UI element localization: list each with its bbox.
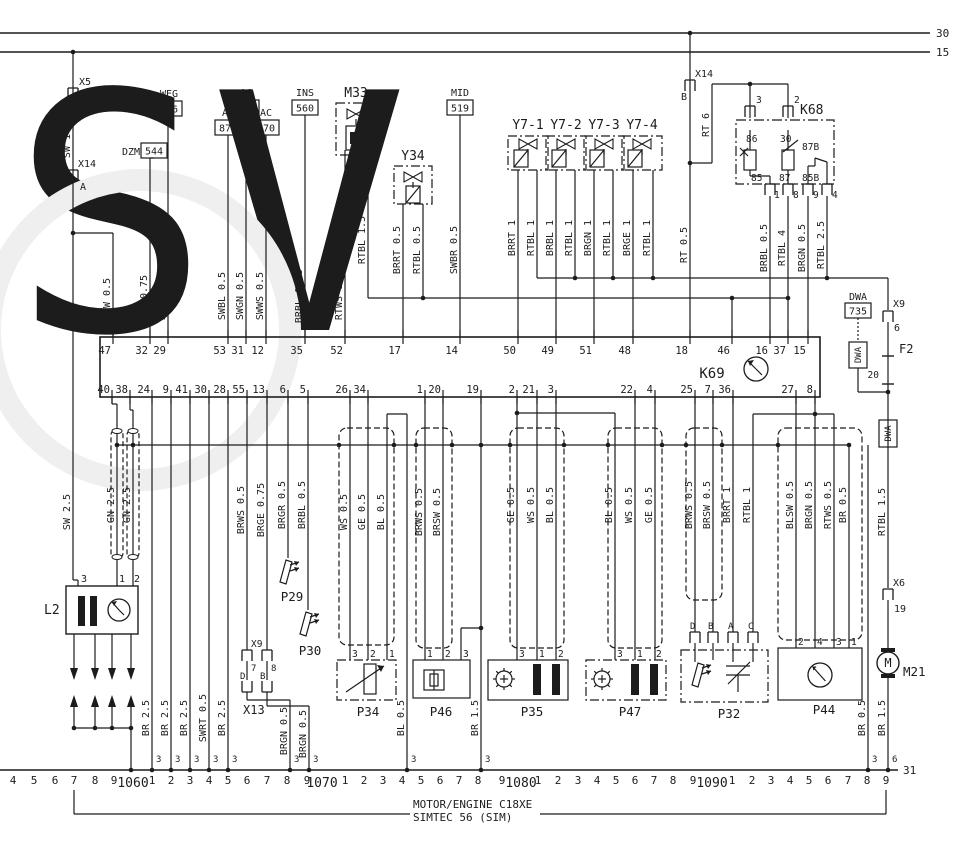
ecu-pin-19: 19 [466,384,479,396]
connector-label-X9: X9 [251,639,263,650]
spark-arrow-up [127,695,135,707]
connector-label-X5: X5 [79,77,91,88]
connector-label-X14: X14 [695,69,713,80]
ecu-pin-1: 1 [417,384,423,396]
label: A [80,182,86,193]
label: 1 [119,574,125,585]
label: 4 [817,637,823,648]
connector-icon [748,632,758,643]
ecu-pin-35: 35 [290,345,303,357]
ecu-pin-55: 55 [232,384,245,396]
scale-number-1090: 1090 [696,776,727,791]
junction-dot [748,82,753,87]
part-label-M33: M33 [344,86,367,101]
part-label-Y34: Y34 [401,149,425,164]
scale-number-4: 4 [787,774,794,787]
pickup-bar [650,664,658,695]
wire-label-BR-1-5: BR 1.5 [470,700,481,736]
junction-dot [226,768,231,773]
junction-dot [688,31,693,36]
part-label-K68: K68 [800,103,823,118]
junction-dot [71,50,76,55]
label: 3 [463,649,469,660]
wire-label-BRGE-0-75: BRGE 0.75 [256,483,267,537]
wire-label-GN-0-75: GN 0.75 [139,275,150,317]
part-label-AC: AC [222,108,234,119]
label: D [690,622,695,632]
ecu-pin-27: 27 [781,384,794,396]
ecu-pin-7: 7 [705,384,711,396]
scale-number-2: 2 [749,774,756,787]
ecu-pin-12: 12 [251,345,264,357]
junction-dot [188,768,193,773]
junction-dot [479,626,484,631]
part-label-P34: P34 [357,704,380,719]
ecu-pin-9: 9 [163,384,169,396]
scale-number-6: 6 [632,774,639,787]
wire-label-BR-2-5: BR 2.5 [141,700,152,736]
part-code-872: 872 [237,104,255,115]
relay-coil [782,150,794,170]
wire-label-WS-0-5: WS 0.5 [526,487,537,523]
ecu-pin-13: 13 [252,384,265,396]
scale-number-7: 7 [71,774,78,787]
wire-label-BRRT-1: BRRT 1 [722,487,733,523]
pickup-bar [552,664,560,695]
wire-label-BR-1-5: BR 1.5 [877,700,888,736]
wire-label-RTWS-1-5: RTWS 1.5 [334,272,345,320]
wire-label-GN-2-5: GN 2.5 [122,487,133,523]
part-code-560: 560 [296,104,314,115]
wire-label-BRSW-0-5: BRSW 0.5 [702,481,713,529]
scale-number-7: 7 [845,774,852,787]
wire-label-BL-0-5: BL 0.5 [396,700,407,736]
wire-label-BRRT-1: BRRT 1 [507,220,518,256]
scale-number-3: 3 [575,774,582,787]
junction-dot [131,443,136,448]
wire-label-RTWS-0-5: RTWS 0.5 [823,481,834,529]
label: C [748,622,753,632]
scale-number-8: 8 [475,774,482,787]
junction-dot [479,768,484,773]
label: 86 [746,134,758,145]
label: 85B [802,173,819,184]
wire [815,158,827,162]
junction-dot [71,231,76,236]
wire [594,685,596,687]
wire-label-SWRT-0-5: SWRT 0.5 [198,694,209,742]
label: 1 [389,649,395,660]
label: 3 [352,649,358,660]
wire-label-BLSW-0-5: BLSW 0.5 [785,481,796,529]
wire-label-RTBL-1: RTBL 1 [564,220,575,256]
connector-icon [242,650,252,661]
part-label-P46: P46 [430,704,453,719]
part-label-P29: P29 [281,589,304,604]
spark-arrow-up [108,695,116,707]
wire-label-BRWS-0-5: BRWS 0.5 [414,488,425,536]
junction-dot [169,768,174,773]
ecu-pin-16: 16 [755,345,768,357]
label: DWA [884,425,894,442]
label: 8 [793,190,799,201]
sensor-icon [300,612,312,636]
connector-icon [822,184,832,195]
scale-number-2: 2 [555,774,562,787]
label: 735 [849,307,867,318]
scale-number-9: 9 [499,774,506,787]
wire-label-RT-6: RT 6 [701,113,712,137]
junction-dot [886,768,891,773]
scale-number-4: 4 [10,774,17,787]
scale-number-5: 5 [418,774,425,787]
wire-label-BRSW-0-5: BRSW 0.5 [432,488,443,536]
connector-icon [262,681,272,692]
part-label-P32: P32 [718,706,741,721]
ecu-pin-6: 6 [280,384,286,396]
connector-label-X13: X13 [243,703,265,717]
part-label-DZM: DZM [122,147,140,158]
wire-label-WS-0-5: WS 0.5 [624,487,635,523]
junction-dot [886,390,891,395]
ecu-pin-26: 26 [335,384,348,396]
rail-connection-6: 6 [892,755,897,765]
scale-number-6: 6 [244,774,251,787]
part-label-Y7-1: Y7-1 [512,118,543,133]
part-code-870: 870 [257,124,275,135]
rail-connection-3: 3 [175,755,180,765]
wire [628,150,642,167]
rail-connection-3: 3 [232,755,237,765]
watermark: SV [11,24,408,408]
ecu-pin-14: 14 [445,345,458,357]
scale-number-8: 8 [92,774,99,787]
scale-number-1: 1 [729,774,736,787]
ecu-pin-37: 37 [773,345,786,357]
scale-number-2: 2 [361,774,368,787]
box [881,648,895,652]
rail-connection-3: 3 [313,755,318,765]
connector-icon [803,184,813,195]
connector-icon [883,311,893,322]
wire-label-BR-0-5: BR 0.5 [838,487,849,523]
spark-arrow-down [127,668,135,680]
junction-dot [515,411,520,416]
ecu-pin-4: 4 [647,384,653,396]
scale-number-6: 6 [52,774,59,787]
wire [510,685,512,687]
connector-icon [708,632,718,643]
connector-icon [690,632,700,643]
connector-label-X14: X14 [78,159,96,170]
ecu-pin-41: 41 [175,384,188,396]
sensor-icon [280,560,292,584]
wire-label-RT-0-5: RT 0.5 [679,227,690,263]
rail-connection-3: 3 [213,755,218,765]
wire [552,150,566,167]
scale-number-1060: 1060 [117,776,148,791]
sensor-icon [692,663,704,687]
scale-number-8: 8 [284,774,291,787]
part-label-P30: P30 [299,643,322,658]
label: 3 [756,95,762,106]
junction-dot [129,768,134,773]
wire-label-RTBL-1: RTBL 1 [742,487,753,523]
bus-label-15: 15 [936,46,949,59]
wire [510,671,512,673]
part-label-WEG: WEG [160,89,178,100]
label: 1 [851,637,857,648]
label: 1 [637,649,643,660]
connector-label-X9: X9 [893,299,905,310]
coil-bar [78,596,85,626]
motor-symbol: M [884,656,891,670]
rail-connection-3: 3 [411,755,416,765]
connector-icon [262,650,272,661]
ecu-pin-28: 28 [213,384,226,396]
wire-label-BL-0-5: BL 0.5 [604,487,615,523]
wire [496,671,498,673]
scale-number-5: 5 [806,774,813,787]
junction-dot [847,443,852,448]
wire-label-BL-0-5: BL 0.5 [376,494,387,530]
label: 2 [445,649,451,660]
label: 30 [780,134,792,145]
wire-label-BL-0-5: BL 0.5 [545,487,556,523]
part-label-MID: MID [451,88,469,99]
wire-label-BRGN-1: BRGN 1 [583,220,594,256]
label: 1 [539,649,545,660]
label: 6 [894,323,900,334]
scale-number-3: 3 [187,774,194,787]
junction-dot [288,768,293,773]
part-label-L2: L2 [44,603,60,618]
connector-icon [883,589,893,600]
scale-number-1: 1 [342,774,349,787]
part-label-AC: AC [240,88,252,99]
wire-label-RTBL-4: RTBL 4 [777,230,788,266]
junction-dot [421,296,426,301]
ecu-pin-18: 18 [675,345,688,357]
label: 2 [558,649,564,660]
wire-label-SW-1-5: SW 1.5 [62,122,73,158]
scale-number-5: 5 [225,774,232,787]
part-label-Y7-2: Y7-2 [550,118,581,133]
wire-label-RTBL-1: RTBL 1 [602,220,613,256]
wire [608,685,610,687]
part-code-556: 556 [160,105,178,116]
pump-icon [350,132,362,144]
ecu-pin-51: 51 [579,345,592,357]
scale-number-7: 7 [264,774,271,787]
ecu-pin-52: 52 [330,345,343,357]
part-box-P46 [413,660,470,698]
junction-dot [730,296,735,301]
rail-connection-3: 3 [872,755,877,765]
wire [594,671,596,673]
label: 4 [832,190,838,201]
scale-number-4: 4 [206,774,213,787]
wire [608,671,610,673]
valve-icon [557,139,575,149]
wire-label-SWBR-0-5: SWBR 0.5 [449,226,460,274]
wiring-diagram: SV301531K6947322953311235521714504951481… [0,0,967,842]
junction-dot [72,726,77,731]
valve-icon [519,139,537,149]
coil-bar [90,596,97,626]
label: 3 [519,649,525,660]
scale-number-3: 3 [768,774,775,787]
part-code-544: 544 [145,147,163,158]
label: DWA [854,346,864,363]
wire-label-SW-2-5: SW 2.5 [62,494,73,530]
pickup-bar [631,664,639,695]
scale-number-4: 4 [399,774,406,787]
ecu-pin-30: 30 [194,384,207,396]
wire [119,610,124,615]
ecu-pin-53: 53 [213,345,226,357]
spark-arrow-up [91,695,99,707]
tube-end [112,429,122,434]
junction-dot [207,768,212,773]
bus-label-30: 30 [936,27,949,40]
scale-number-2: 2 [168,774,175,787]
label: 2 [798,637,804,648]
scale-number-8: 8 [670,774,677,787]
wire [820,675,825,681]
ecu-pin-36: 36 [718,384,731,396]
wire-label-WS-0-5: WS 0.5 [339,494,350,530]
junction-dot [129,726,134,731]
ecu-pin-50: 50 [503,345,516,357]
part-label-DWA: DWA [849,292,867,303]
wire-label-GE-0-5: GE 0.5 [644,487,655,523]
part-code-519: 519 [451,104,469,115]
wire-label-BRBL-0-5: BRBL 0.5 [759,224,770,272]
scale-number-3: 3 [380,774,387,787]
rail-connection-3: 3 [294,755,299,765]
wire-label-GE-0-5: GE 0.5 [506,487,517,523]
wire [514,150,528,167]
arrow [377,665,384,672]
spark-arrow-down [70,668,78,680]
wire-label-BR-2-5: BR 2.5 [160,700,171,736]
label: 87B [802,142,819,153]
part-label-Y7-4: Y7-4 [626,118,657,133]
spark-arrow-down [108,668,116,680]
ecu-pin-22: 22 [620,384,633,396]
part-label-P35: P35 [521,704,544,719]
wire-label-RTBL-1: RTBL 1 [642,220,653,256]
wire-label-BRWS-0-5: BRWS 0.5 [684,481,695,529]
scale-number-8: 8 [864,774,871,787]
part-label-P47: P47 [619,704,642,719]
ecu-pin-47: 47 [98,345,111,357]
scale-number-1: 1 [535,774,542,787]
label: 9 [80,100,86,111]
wire-label-BRGN-0-5: BRGN 0.5 [298,710,309,758]
scale-number-9: 9 [111,774,118,787]
scale-number-5: 5 [613,774,620,787]
pickup-bar [533,664,541,695]
ecu-pin-29: 29 [153,345,166,357]
part-label-Y7-3: Y7-3 [588,118,619,133]
ecu-pin-34: 34 [353,384,366,396]
wire-label-SWBL-0-5: SWBL 0.5 [217,272,228,320]
junction-dot [479,443,484,448]
label: 2 [134,574,140,585]
wire-label-BR-2-5: BR 2.5 [179,700,190,736]
connector-icon [728,632,738,643]
ecu-pin-31: 31 [231,345,244,357]
caption: MOTOR/ENGINE C18XE SIMTEC 56 (SIM) [413,798,532,824]
label: 85 [751,173,762,184]
junction-dot [405,768,410,773]
ecu-pin-49: 49 [541,345,554,357]
ecu-pin-24: 24 [137,384,150,396]
wire-label-BR-2-5: BR 2.5 [217,700,228,736]
wire [590,150,604,167]
part-box-L2 [66,586,138,634]
wire-label-BRBL-1: BRBL 1 [545,220,556,256]
junction-dot [115,443,120,448]
junction-dot [813,412,818,417]
junction-dot [825,276,830,281]
ecu-pin-20: 20 [428,384,441,396]
label: 87 [779,173,790,184]
label: B [708,622,713,632]
label: B [260,672,265,682]
connector-icon [242,681,252,692]
part-label-INS: INS [296,88,314,99]
part-box-P44 [778,648,862,700]
junction-dot [786,296,791,301]
junction-dot [307,768,312,773]
wire-label-SWWS-0-5: SWWS 0.5 [255,272,266,320]
shield [339,428,394,645]
scale-number-1: 1 [149,774,156,787]
label: 8 [271,664,276,674]
wire-label-BRGN-0-5: BRGN 0.5 [279,707,290,755]
wire-label-BRGR-0-5: BRGR 0.5 [277,481,288,529]
ecu-pin-17: 17 [388,345,401,357]
fuse-rating: 20 [868,370,880,381]
wire [728,662,750,684]
ground-bus-label: 31 [903,764,916,777]
wire-label-BRBL-0-75: BRBL 0.75 [294,269,305,323]
label: 1 [427,649,433,660]
label: 3 [617,649,623,660]
spark-arrow-down [91,668,99,680]
wire-label-BRBL-0-5: BRBL 0.5 [297,481,308,529]
label: B [681,92,687,103]
junction-dot [110,726,115,731]
wire [346,666,384,692]
wiring-diagram-page: SV301531K6947322953311235521714504951481… [0,0,967,842]
label: 2 [656,649,662,660]
wire-label-GN-2-5: GN 2.5 [106,487,117,523]
rail-connection-3: 3 [194,755,199,765]
junction-dot [866,768,871,773]
wire-label-SWGN-0-5: SWGN 0.5 [235,272,246,320]
junction-dot [150,768,155,773]
junction-dot [651,276,656,281]
scale-number-5: 5 [31,774,38,787]
wire [756,369,762,375]
connector-label-X6: X6 [893,578,905,589]
scale-number-6: 6 [437,774,444,787]
wire-label-RTBL-1-5: RTBL 1.5 [877,488,888,536]
